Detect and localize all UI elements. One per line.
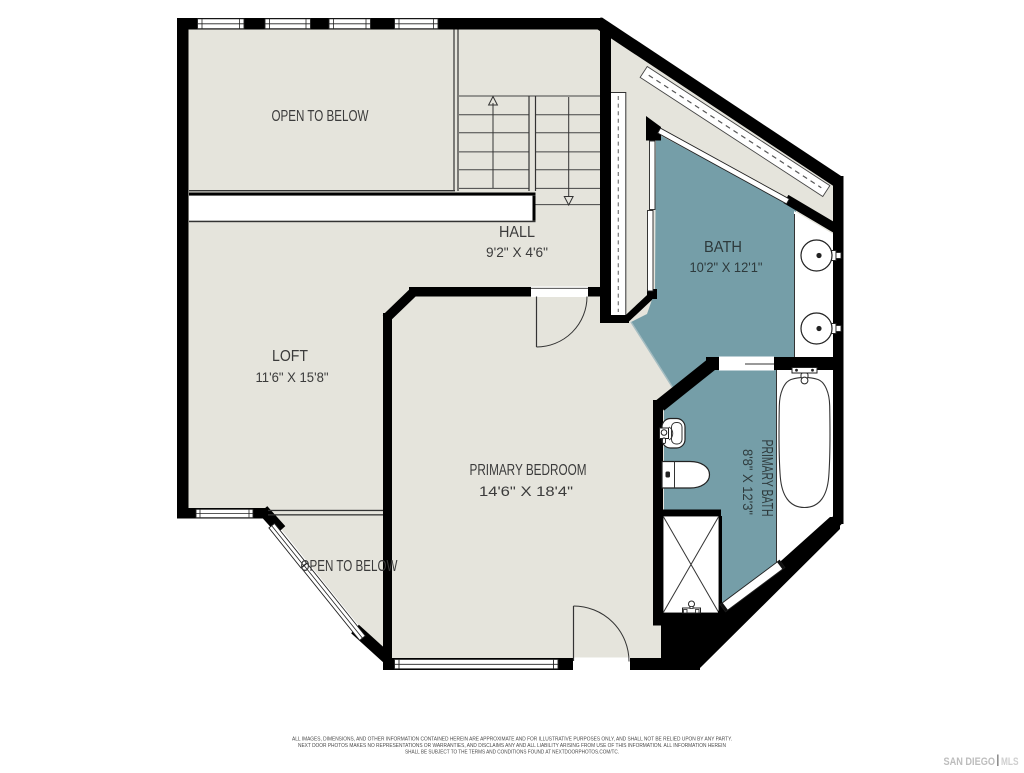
- svg-text:10'2" X 12'1": 10'2" X 12'1": [690, 259, 763, 275]
- svg-text:PRIMARY BEDROOM: PRIMARY BEDROOM: [470, 462, 587, 479]
- svg-text:14'6" X 18'4": 14'6" X 18'4": [479, 483, 573, 499]
- svg-text:BATH: BATH: [704, 239, 742, 256]
- svg-text:MLS: MLS: [1001, 756, 1019, 768]
- svg-text:SAN DIEGO: SAN DIEGO: [944, 756, 996, 768]
- svg-text:SHALL BE SUBJECT TO THE TERMS: SHALL BE SUBJECT TO THE TERMS AND CONDIT…: [405, 750, 619, 756]
- svg-text:LOFT: LOFT: [272, 348, 308, 365]
- svg-text:NEXT DOOR PHOTOS MAKES NO REPR: NEXT DOOR PHOTOS MAKES NO REPRESENTATION…: [298, 743, 726, 749]
- svg-text:OPEN TO BELOW: OPEN TO BELOW: [272, 108, 370, 125]
- svg-text:11'6" X 15'8": 11'6" X 15'8": [256, 369, 329, 385]
- svg-text:PRIMARY BATH: PRIMARY BATH: [758, 440, 775, 517]
- svg-text:OPEN TO BELOW: OPEN TO BELOW: [301, 558, 399, 575]
- svg-text:ALL IMAGES, DIMENSIONS, AND OT: ALL IMAGES, DIMENSIONS, AND OTHER INFORM…: [292, 737, 732, 743]
- svg-text:9'2" X 4'6": 9'2" X 4'6": [486, 244, 548, 260]
- svg-text:8'8" X 12'3": 8'8" X 12'3": [740, 449, 756, 515]
- svg-text:HALL: HALL: [499, 224, 535, 241]
